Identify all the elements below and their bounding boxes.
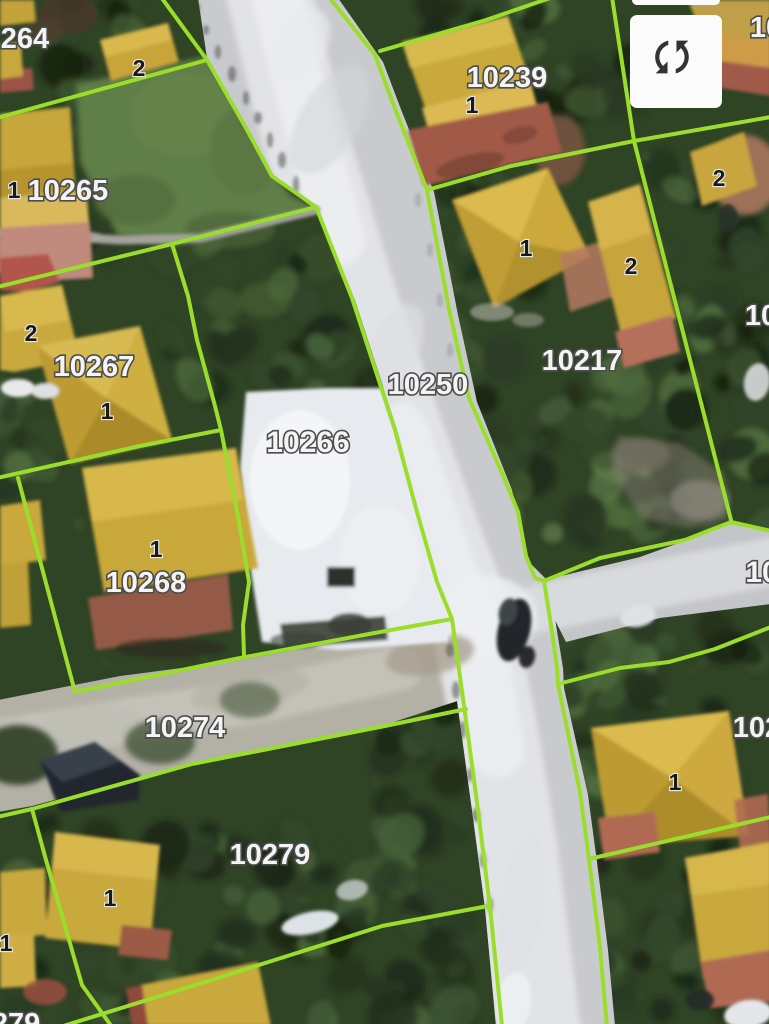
svg-text:10: 10	[745, 300, 769, 332]
svg-text:1: 1	[520, 235, 533, 261]
svg-text:10250: 10250	[388, 369, 469, 401]
svg-text:2: 2	[25, 320, 38, 346]
svg-text:1: 1	[669, 769, 682, 795]
svg-text:102: 102	[733, 712, 769, 744]
svg-text:1: 1	[101, 398, 114, 424]
svg-text:2: 2	[713, 165, 726, 191]
svg-text:10267: 10267	[54, 351, 135, 383]
svg-text:10274: 10274	[145, 712, 226, 744]
svg-text:264: 264	[1, 23, 49, 55]
svg-text:10268: 10268	[106, 567, 187, 599]
svg-text:10239: 10239	[467, 62, 548, 94]
svg-text:1: 1	[0, 930, 13, 956]
svg-text:1: 1	[104, 885, 117, 911]
svg-text:10266: 10266	[266, 426, 349, 459]
svg-text:10: 10	[750, 12, 769, 44]
svg-text:2: 2	[625, 253, 638, 279]
svg-text:2: 2	[133, 55, 146, 81]
svg-text:1: 1	[150, 536, 163, 562]
svg-text:10265: 10265	[28, 175, 109, 207]
svg-text:10279: 10279	[230, 839, 311, 871]
svg-text:1: 1	[466, 92, 479, 118]
svg-text:279: 279	[0, 1008, 40, 1024]
svg-text:1: 1	[8, 177, 21, 203]
svg-text:10217: 10217	[542, 345, 623, 377]
svg-text:10: 10	[745, 556, 769, 589]
